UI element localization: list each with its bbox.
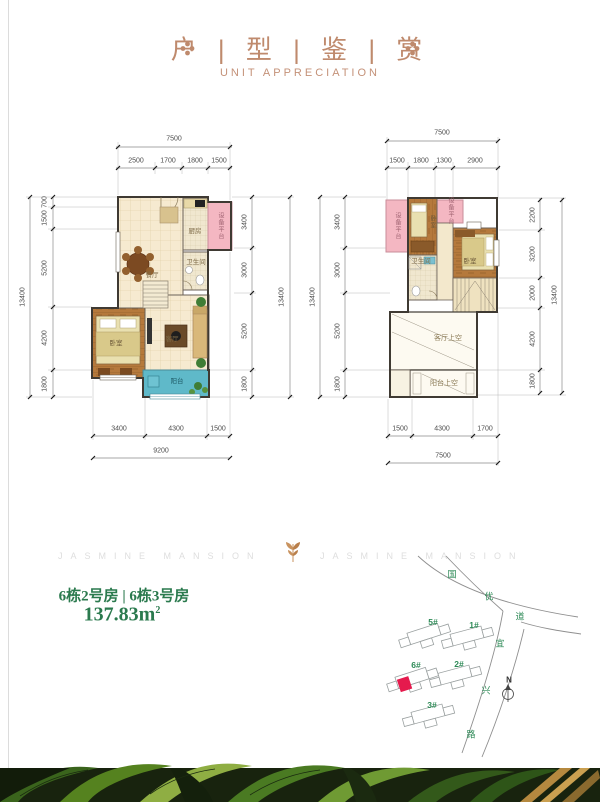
- north-label: N: [506, 676, 512, 685]
- dim-label: 2500: [128, 158, 144, 165]
- dim-label: 7500: [166, 136, 182, 143]
- road-name-char: 宜: [495, 637, 504, 650]
- dim-label: 3400: [111, 426, 127, 433]
- building-label-1: 1#: [469, 620, 478, 630]
- dim-label: 13400: [552, 285, 559, 304]
- dim-label: 1800: [242, 376, 249, 392]
- building-label-2: 2#: [454, 659, 463, 669]
- road-name-char: 路: [466, 728, 475, 741]
- room-label-living: 客厅: [166, 337, 179, 344]
- room-label-equipment-left: 设备平台: [394, 212, 400, 240]
- dim-label: 3000: [242, 262, 249, 278]
- dim-label: 13400: [20, 287, 27, 306]
- room-label-dining: 餐厅: [146, 273, 159, 280]
- building-footprint-5: [397, 620, 452, 654]
- dim-label: 2000: [530, 285, 537, 301]
- road-name-char: 优: [484, 590, 493, 603]
- dim-label: 1800: [187, 158, 203, 165]
- footer-leaf-border: [0, 764, 600, 802]
- dim-label: 4200: [530, 331, 537, 347]
- dim-label: 1800: [42, 376, 49, 392]
- building-label-5: 5#: [428, 617, 437, 627]
- room-label-bedroom-main: 卧室: [464, 259, 477, 266]
- room-label-balcony-void: 阳台上空: [430, 378, 458, 388]
- dim-label: 5200: [335, 323, 342, 339]
- room-label-balcony: 阳台: [171, 379, 184, 386]
- dim-label: 1500: [389, 158, 405, 165]
- dim-label: 1800: [530, 373, 537, 389]
- site-roads: [418, 556, 581, 757]
- dim-label: 13400: [279, 287, 286, 306]
- dim-label: 1700: [477, 426, 493, 433]
- site-map-graphics: [385, 556, 581, 757]
- building-label-6: 6#: [411, 660, 420, 670]
- dim-label: 700: [42, 196, 49, 208]
- room-label-equipment: 设备平台: [217, 212, 223, 240]
- dim-label: 3000: [335, 262, 342, 278]
- room-label-bedroom: 卧室: [110, 341, 123, 348]
- right-plan-dimension-lines: [318, 137, 566, 466]
- dim-label: 3200: [530, 246, 537, 262]
- dim-label: 1500: [210, 426, 226, 433]
- unit-area-value: 137.83m: [84, 604, 156, 626]
- unit-area-sup: 2: [155, 605, 160, 616]
- road-name-char: 国: [447, 568, 456, 581]
- watermark-text-left: JASMINE MANSION: [58, 551, 262, 561]
- building-label-3: 3#: [427, 700, 436, 710]
- dim-label: 2900: [467, 158, 483, 165]
- room-label-kitchen: 厨房: [189, 229, 202, 236]
- room-label-living-void: 客厅上空: [434, 333, 462, 343]
- room-label-bedroom-left: 卧室: [429, 215, 435, 229]
- dim-label: 4300: [434, 426, 450, 433]
- dim-label: 5200: [242, 323, 249, 339]
- left-plan-drawing: [92, 197, 232, 399]
- flower-ornament-icon: [405, 41, 420, 56]
- dim-label: 4300: [168, 426, 184, 433]
- dim-label: 5200: [42, 260, 49, 276]
- room-label-bath: 卫生间: [411, 259, 431, 266]
- dim-label: 1500: [42, 210, 49, 226]
- page-subtitle: UNIT APPRECIATION: [220, 67, 380, 79]
- dim-label: 4200: [42, 330, 49, 346]
- brochure-page: 户 | 型 | 鉴 | 赏 UNIT APPRECIATION 7500 250…: [0, 0, 600, 802]
- road-name-char: 道: [515, 610, 524, 623]
- dim-label: 9200: [153, 448, 169, 455]
- unit-area: 137.83m2: [84, 604, 161, 627]
- dim-label: 1800: [335, 376, 342, 392]
- watermark-text-right: JASMINE MANSION: [320, 551, 524, 561]
- dim-label: 13400: [310, 287, 317, 306]
- dim-label: 1500: [392, 426, 408, 433]
- page-title: 户 | 型 | 鉴 | 赏: [171, 30, 430, 67]
- road-name-char: 兴: [481, 684, 490, 697]
- right-plan-drawing: [386, 198, 499, 397]
- dim-label: 1300: [436, 158, 452, 165]
- dim-label: 3400: [242, 214, 249, 230]
- dim-label: 2200: [530, 207, 537, 223]
- leaf-ornament-icon: [284, 542, 302, 562]
- room-label-equipment-top: 设备平台: [447, 197, 453, 225]
- room-label-bath: 卫生间: [186, 260, 206, 267]
- dim-label: 1700: [160, 158, 176, 165]
- dim-label: 1800: [413, 158, 429, 165]
- dim-label: 3400: [335, 214, 342, 230]
- dim-label: 1500: [211, 158, 227, 165]
- dim-label: 7500: [435, 453, 451, 460]
- unit-name: 6栋2号房 | 6栋3号房: [59, 585, 190, 606]
- dim-label: 7500: [434, 130, 450, 137]
